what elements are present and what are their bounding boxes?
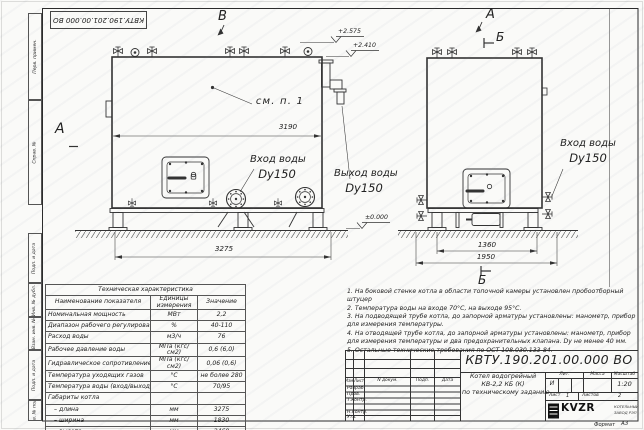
specs-col-value: Значение [198,296,246,310]
table-row: Габариты котла [46,393,246,404]
format-value: А3 [621,422,628,428]
sheets-value: 2 [618,394,621,399]
table-row: Диапазон рабочего регулирования%40-110 [46,321,246,332]
specs-col-name: Наименование показателя [46,296,151,310]
scale-header: Масштаб [612,373,637,378]
rev-header-podp: Подп. [411,379,434,384]
elevation-mark-zero: ±0.000 [365,215,388,222]
section-label-b-top: Б [496,31,504,44]
front-inlet-label: Вход воды [250,155,304,166]
sheets-label: Листов [582,394,599,399]
side-inlet-dn: Dy150 [564,152,612,164]
company-name-line1: КОТЕЛЬНЫЙ [614,405,639,409]
lit-header: Лит. [546,373,583,378]
view-label-v: В [218,10,227,24]
drawing-sheet: Перв. примен. Справ. № Подп. и дата Инв.… [0,0,644,430]
technical-notes: 1. На боковой стенке котла в области топ… [347,288,636,355]
view-label-a-side: А [486,8,495,22]
rev-header-data: Дата [435,379,460,384]
margin-box-inv-podl: Инв. № подл. [28,400,42,421]
table-row: – высотамм2460 [46,427,246,430]
table-row: Температура воды (вход/выход)°С70/95 [46,382,246,393]
margin-box-podp-data-2: Подп. и дата [28,350,42,400]
top-doc-number-stamp: КВТУ.190.201.00.000 ВО [50,11,147,29]
sign-row-razrab: Разраб. [347,387,365,392]
elevation-mark-2410: +2.410 [353,43,376,50]
outlet-pipe [319,60,346,104]
view-label-a-front: А [55,122,65,137]
sheet-label: Лист [549,394,560,399]
front-base [109,209,327,231]
table-row: – длинамм3275 [46,404,246,415]
table-row: Рабочее давление водыМПа (кгс/см2)0,6 (6… [46,343,246,357]
product-name-line3: по техническому заданию [462,390,544,397]
company-name-line2: ЗАВОД РЭП [614,411,637,415]
see-note-callout: см. п. 1 [254,97,306,108]
rev-header-izm: Изм. [345,379,354,383]
note-1: 1. На боковой стенке котла в области топ… [347,288,636,304]
elevation-mark-2575: +2.575 [338,29,361,36]
margin-box-perv-primen: Перв. примен. [28,13,42,100]
product-name-line1: Котел водогрейный [462,374,544,381]
lit-value: И [546,381,558,387]
format-label: Формат [594,423,615,428]
side-view [398,48,578,238]
margin-box-podp-data-1: Подп. и дата [28,233,42,283]
dim-3190: 3190 [268,123,308,131]
sign-row-prov: Пров. [347,393,360,398]
table-row: Гидравлическое сопротивление котлаМПа (к… [46,357,246,371]
dim-1950: 1950 [466,253,506,261]
sheet-value: 1 [566,394,569,399]
ash-drawer [466,214,500,226]
table-row: Температура уходящих газов°Сне более 280 [46,371,246,382]
scale-value: 1:20 [612,381,637,388]
side-inlet-label: Вход воды [560,139,616,150]
margin-box-vzam-inv: Взам. инв. № [28,317,42,350]
specs-col-units: Единицы измерения [151,296,198,310]
margin-box-sprav-no: Справ. № [28,100,42,205]
table-row: Номинальная мощностьМВт2,2 [46,309,246,320]
mass-header: Масса [584,373,611,378]
kvzr-logo-text: KVZR [561,403,595,414]
note-2: 2. Температура воды на входе 70°С, на вы… [347,305,636,313]
margin-box-inv-dubl: Инв. № дубл. [28,283,42,317]
table-row: Расход водым3/ч76 [46,332,246,343]
specs-table-title: Техническая характеристика [46,285,246,296]
sign-row-tkontr: Т.контр. [347,399,367,404]
front-outlet-dn: Dy150 [338,182,390,194]
note-3: 3. На подводящей трубе котла, до запорно… [347,313,636,329]
table-row: – ширинамм1830 [46,415,246,426]
front-inlet-dn: Dy150 [252,168,302,180]
side-base [428,209,542,231]
front-outlet-label: Выход воды [334,169,394,180]
front-view [75,47,348,238]
sign-row-utv: Утв. [347,416,357,421]
product-name-line2: КВ-2,2 КБ (К) [462,382,544,389]
dim-1360: 1360 [467,241,507,249]
rev-header-list: Лист [354,379,365,383]
note-4: 4. На отводящей трубе котла, до запорной… [347,330,636,346]
dim-3275: 3275 [204,245,244,253]
rev-header-ndoc: N докум. [365,379,410,384]
section-label-b-bottom: Б [478,274,486,287]
title-block-doc-number: КВТУ.190.201.00.000 ВО [462,353,636,366]
specs-table: Техническая характеристика Наименование … [45,284,246,430]
kvzr-logo-icon [548,404,559,419]
